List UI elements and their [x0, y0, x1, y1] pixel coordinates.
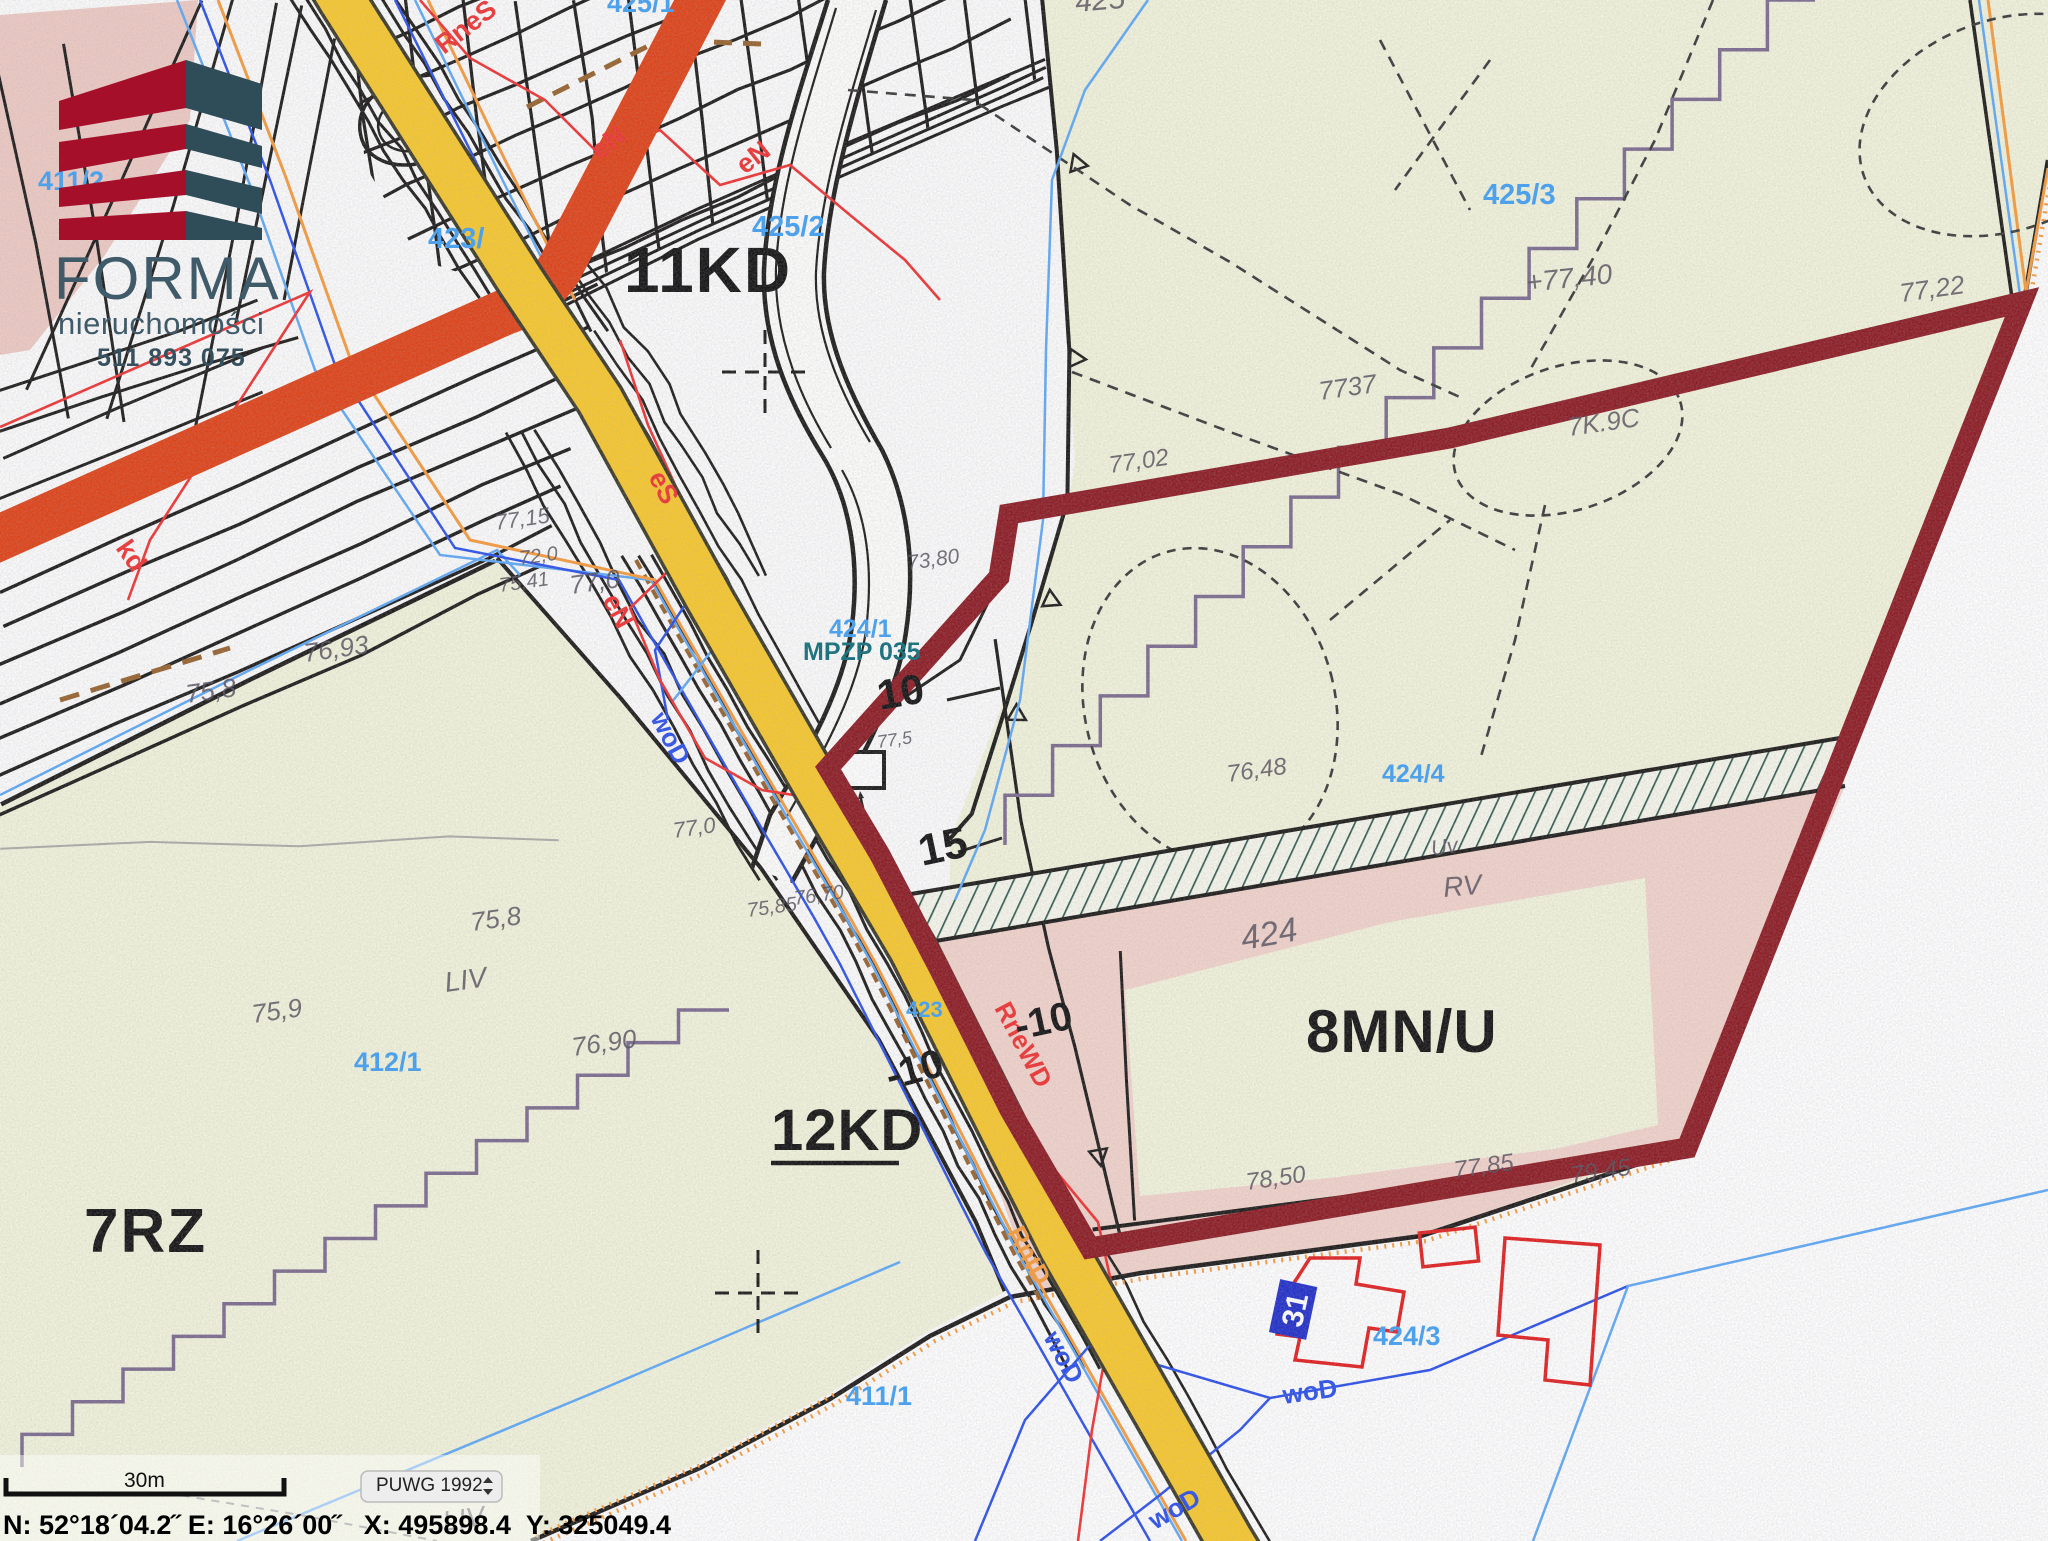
- svg-text:30m: 30m: [124, 1469, 165, 1492]
- svg-text:511 893 075: 511 893 075: [97, 344, 246, 372]
- svg-text:PUWG 1992: PUWG 1992: [376, 1475, 483, 1496]
- svg-text:nieruchomości: nieruchomości: [58, 306, 264, 341]
- svg-text:N: 52°18´04.2˝ E: 16°26´00˝: N: 52°18´04.2˝ E: 16°26´00˝ X: 495898.4 …: [3, 1510, 671, 1540]
- svg-text:FORMA: FORMA: [54, 245, 281, 312]
